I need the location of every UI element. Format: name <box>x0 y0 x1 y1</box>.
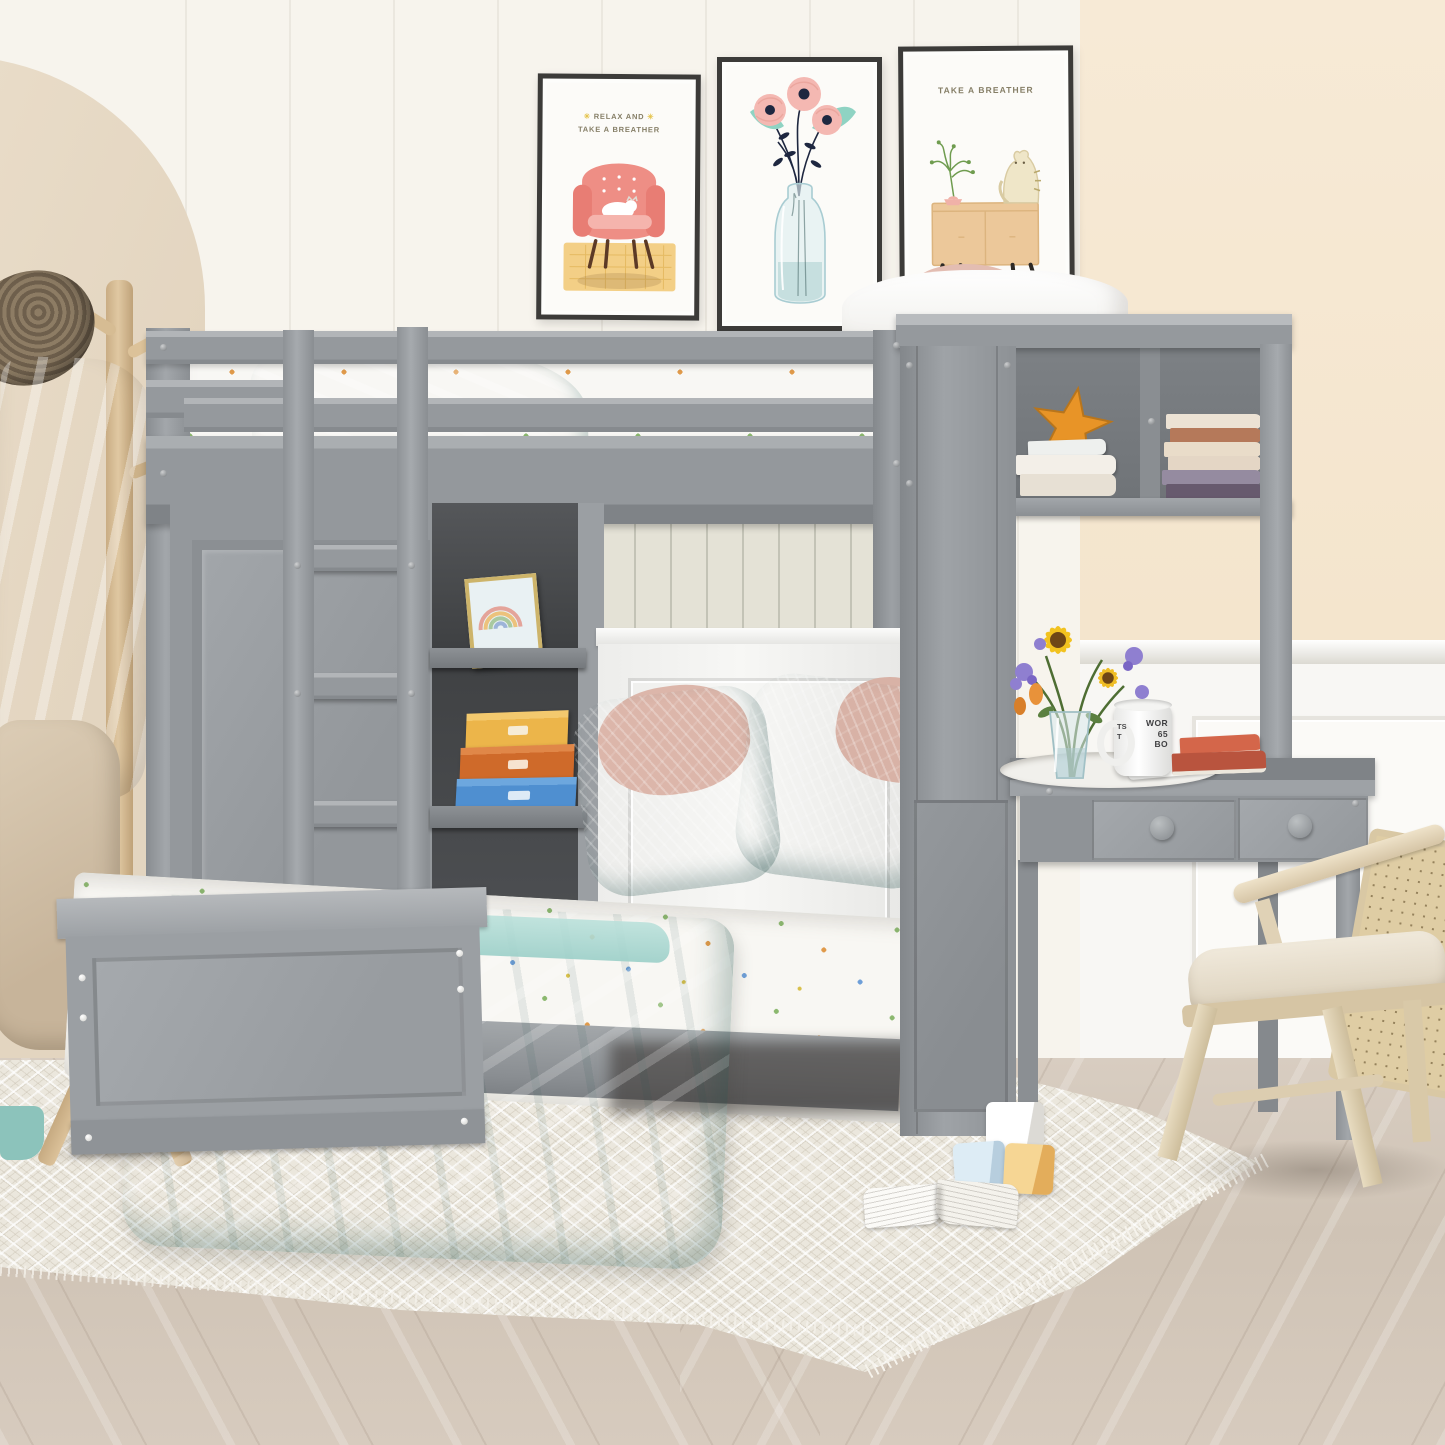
ladder-rung-3 <box>298 801 412 827</box>
hutch-top-slab <box>896 314 1292 348</box>
sunflower-large <box>1043 625 1072 654</box>
teal-quilt-corner-left-edge <box>0 1106 44 1160</box>
twin-bed-footboard <box>56 887 493 1161</box>
frame-screw <box>160 470 167 477</box>
ladder-right-rail <box>397 327 428 958</box>
desk-book-bottom <box>1172 750 1267 775</box>
cubby-shelf-board-2 <box>430 806 586 828</box>
tower-recessed-panel <box>914 800 1008 1112</box>
footboard-panel-inset <box>92 948 466 1106</box>
box-label <box>508 760 528 770</box>
hutch-divider <box>1140 344 1160 506</box>
bedroom-product-photo: RELAX AND TAKE A BREATHER <box>0 0 1445 1445</box>
loft-cap-rail <box>146 331 910 364</box>
chair-shadow <box>1180 1140 1445 1200</box>
ladder-rung-1 <box>298 545 412 571</box>
ladder-left-rail <box>283 330 314 958</box>
cubby-shelf-interior <box>432 503 582 907</box>
frame-screw <box>408 562 415 569</box>
poster-relax-line1: RELAX AND <box>547 110 692 122</box>
mug-text-lines: WOR 65 BO <box>1138 718 1168 750</box>
ladder-rung-2 <box>298 673 412 699</box>
poster-relax-line2: TAKE A BREATHER <box>546 123 691 135</box>
frame-screw <box>160 344 167 351</box>
drawer-knob-right <box>1288 814 1312 838</box>
frame-screw <box>408 690 415 697</box>
poster-flowers-art <box>726 66 873 322</box>
box-label <box>508 726 528 736</box>
open-book <box>864 1178 1020 1234</box>
hutch-shelf-board <box>1012 498 1292 516</box>
drawer-knob-left <box>1150 816 1174 840</box>
frame-screw <box>1148 418 1155 425</box>
desk-leg-left <box>1018 860 1038 1126</box>
cubby-shelf-board-1 <box>430 648 586 668</box>
frame-screw <box>906 480 913 487</box>
mug-line: BO <box>1138 739 1168 750</box>
mug: TS T WOR 65 BO <box>1114 704 1172 776</box>
book-right-1 <box>1166 414 1262 429</box>
book-stack-left-bottom <box>1020 474 1116 496</box>
frame-screw <box>893 460 900 467</box>
poster-relax-armchair: RELAX AND TAKE A BREATHER <box>536 73 701 320</box>
poster-relax-art: RELAX AND TAKE A BREATHER <box>545 82 692 311</box>
poppies-illustration <box>726 66 873 318</box>
book-right-3 <box>1164 442 1262 457</box>
frame-screw <box>1046 788 1053 795</box>
mug-text-fragments-left: TS T <box>1117 722 1127 742</box>
mug-line: WOR <box>1138 718 1168 729</box>
armchair-illustration <box>545 144 691 305</box>
book-page-left <box>863 1183 944 1228</box>
frame-screw <box>1352 800 1359 807</box>
book-right-4 <box>1168 456 1262 471</box>
frame-screw <box>294 562 301 569</box>
frame-screw <box>906 362 913 369</box>
book-page-right <box>935 1179 1020 1229</box>
book-right-5 <box>1162 470 1262 485</box>
poster-cat-title: TAKE A BREATHER <box>907 84 1064 95</box>
mug-fragment: TS <box>1117 722 1127 732</box>
frame-screw <box>893 342 900 349</box>
rainbow-art <box>469 578 531 657</box>
book-spine-shadow <box>936 1186 942 1228</box>
box-label <box>508 791 530 800</box>
frame-screw <box>1004 362 1011 369</box>
book-stack-left-mid <box>1016 455 1116 475</box>
frame-screw <box>294 690 301 697</box>
hutch-side-panel <box>1260 344 1292 780</box>
mug-handle <box>1097 720 1135 766</box>
mug-rim <box>1114 699 1172 711</box>
mug-fragment: T <box>1117 732 1127 742</box>
book-right-2 <box>1170 428 1262 443</box>
sunflower-small <box>1097 667 1118 688</box>
mug-line: 65 <box>1138 729 1168 740</box>
